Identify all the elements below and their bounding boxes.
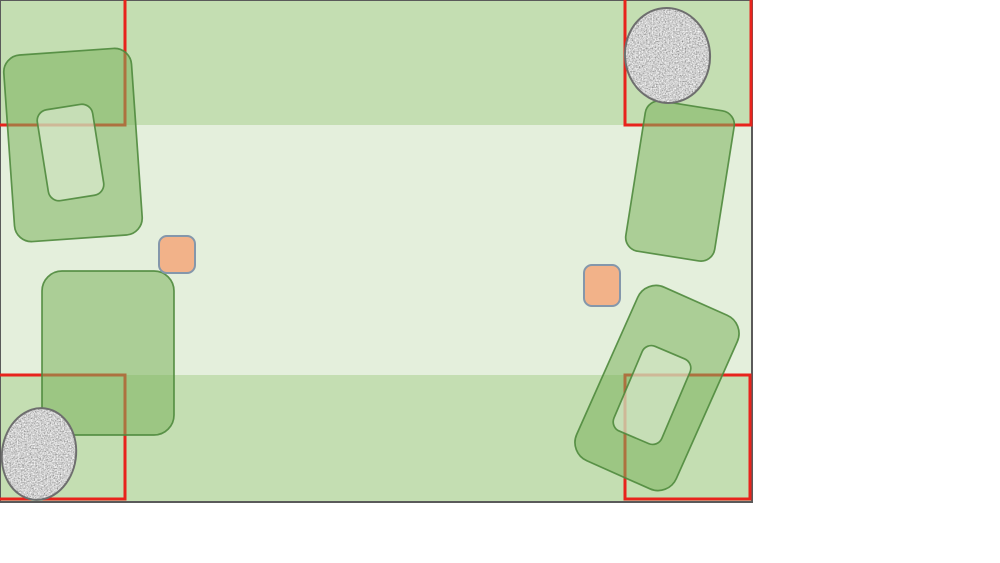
scene-svg (0, 0, 753, 503)
scene-canvas (0, 0, 753, 503)
marker-right (584, 265, 620, 306)
marker-left (159, 236, 195, 273)
scene-layers (0, 0, 753, 503)
page (0, 0, 1000, 563)
bed-mid-left (42, 271, 174, 435)
